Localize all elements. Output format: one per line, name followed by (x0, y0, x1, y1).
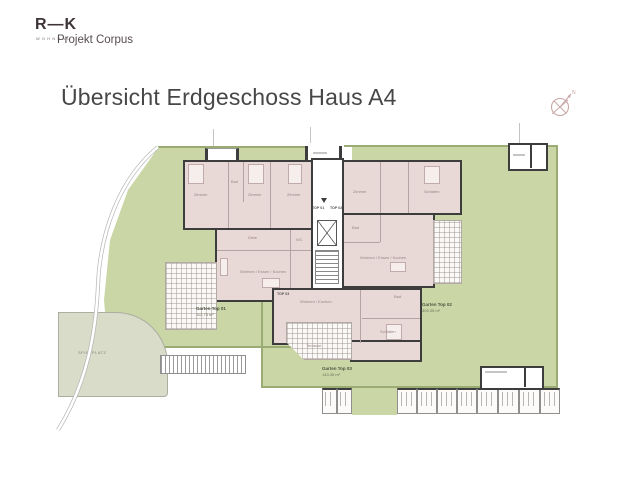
interior-wall (217, 250, 311, 251)
interior-wall (380, 215, 381, 242)
compass-north-label: N (572, 90, 576, 96)
storage-stall (519, 388, 540, 414)
apartment-top02-bedroom-band (342, 160, 462, 215)
unit-label-top01: TOP 01 (312, 206, 324, 210)
dimension-tick (519, 123, 520, 143)
interior-wall (360, 290, 361, 343)
garden-area: 309,35 m² (422, 308, 452, 313)
garden-shed-bottom-right (480, 366, 544, 390)
room-label: Wohnen / Essen / Kochen (360, 256, 406, 260)
bed-symbol (188, 164, 204, 184)
interior-wall (380, 162, 381, 213)
hedge-line (556, 145, 558, 390)
storage-stall (540, 388, 560, 414)
room-label: Terrasse (306, 344, 321, 348)
garden-shed-top-right (508, 143, 548, 171)
bed-symbol (288, 164, 302, 184)
logo-project-name: Projekt Corpus (57, 34, 133, 46)
bed-symbol (248, 164, 264, 184)
storage-stall (397, 388, 417, 414)
page-title: Übersicht Erdgeschoss Haus A4 (61, 84, 397, 111)
storage-stall (437, 388, 457, 414)
interior-wall (243, 162, 244, 202)
room-label: Bad (231, 180, 238, 184)
unit-label-top03: TOP 03 (277, 292, 289, 296)
sofa-symbol (220, 258, 228, 276)
room-label: Zimmer (194, 193, 208, 197)
unit-label-top02: TOP 02 (330, 206, 342, 210)
room-label: Zimmer (353, 190, 367, 194)
entrance-canopy-mark (321, 198, 327, 203)
garden-label-top03: Garten Top 03 143,35 m² (322, 366, 352, 377)
room-label: Schlafen (424, 190, 440, 194)
interior-wall (408, 162, 409, 213)
room-label: Bad (352, 226, 359, 230)
table-symbol (390, 262, 406, 272)
staircase-symbol (315, 250, 339, 284)
terrace-top02 (433, 220, 462, 284)
garden-area: 143,35 m² (322, 372, 352, 377)
storage-stall (322, 388, 337, 414)
storage-stall (498, 388, 519, 414)
room-label: WC (296, 238, 303, 242)
garden-label-top01: Garten Top 01 112,75 m² (196, 306, 226, 317)
room-label: Zimmer (287, 193, 301, 197)
bed-symbol (424, 166, 440, 184)
room-label: Bad (394, 295, 401, 299)
entrance-sign (313, 152, 327, 154)
interior-wall (228, 162, 229, 228)
storage-stall (417, 388, 437, 414)
compass-north-icon: N (543, 86, 581, 124)
hedge-line (261, 296, 263, 388)
room-label: Wohnen / Kochen (300, 300, 332, 304)
interior-wall (344, 242, 380, 243)
room-label: Diele (248, 236, 257, 240)
table-symbol (262, 278, 280, 288)
terrace-top01 (165, 262, 217, 330)
logo-brand: R—K (35, 16, 77, 34)
garden-strip (352, 388, 397, 415)
interior-wall (362, 318, 420, 319)
apartment-top03-lower (350, 340, 422, 362)
elevator-symbol (317, 220, 337, 246)
pergola-structure (160, 355, 246, 374)
garden-label-top02: Garten Top 02 309,35 m² (422, 302, 452, 313)
storage-stall (477, 388, 498, 414)
room-label: Schlafen (380, 330, 396, 334)
room-label: Wohnen / Essen / Kochen (240, 270, 286, 274)
storage-stall (337, 388, 352, 414)
playground-label: SPIELPLATZ (78, 350, 107, 355)
floorplan-page: R—K WOHNBAU Projekt Corpus Übersicht Erd… (0, 0, 640, 480)
garden-area: 112,75 m² (196, 312, 226, 317)
storage-stall (457, 388, 477, 414)
room-label: Zimmer (248, 193, 262, 197)
interior-wall (270, 162, 271, 228)
